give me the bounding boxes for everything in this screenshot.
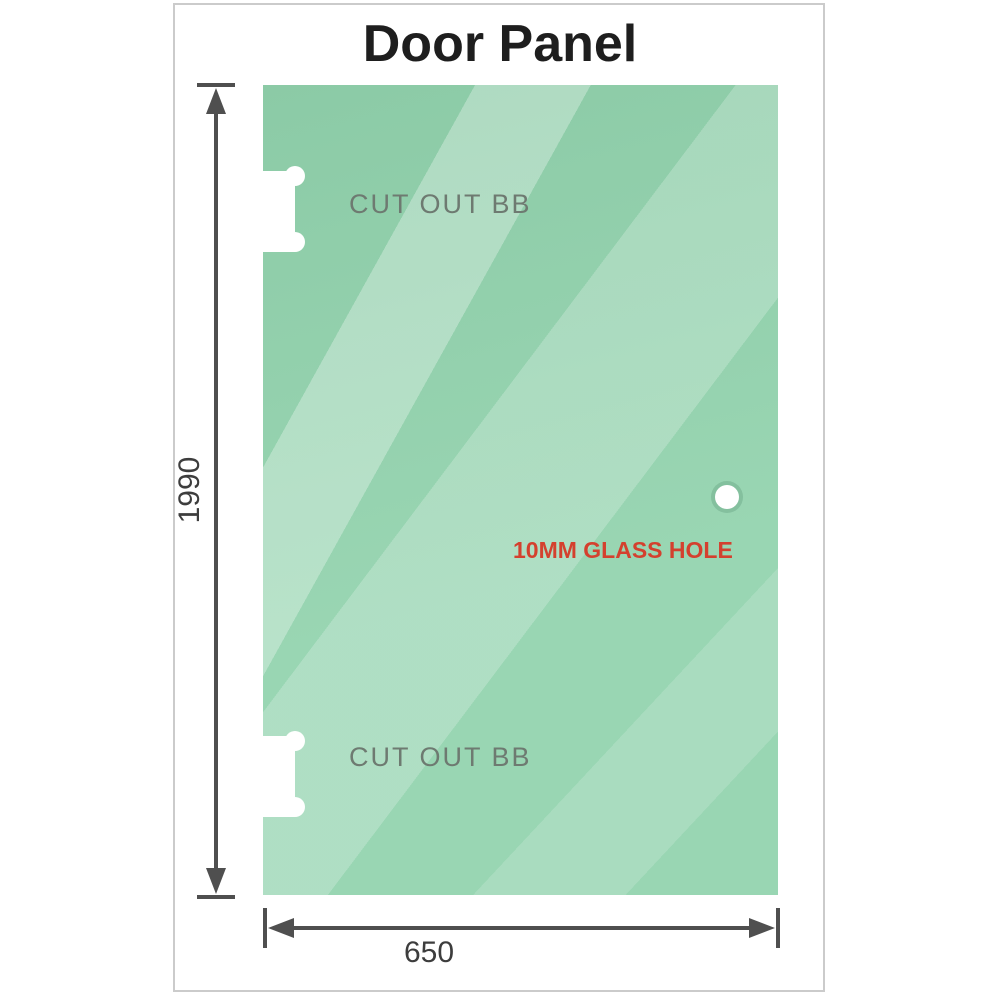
height-dimension-label: 1990 [174, 450, 206, 530]
cutout-label-bottom: CUT OUT BB [349, 742, 532, 773]
diagram-title: Door Panel [173, 14, 827, 74]
glass-hole-label: 10MM GLASS HOLE [513, 537, 733, 564]
cutout-label-top: CUT OUT BB [349, 189, 532, 220]
glass-hole [715, 485, 739, 509]
door-panel-diagram: Door Panel CUT OUT BB CUT OUT BB 10MM GL… [0, 0, 1000, 1000]
hinge-cutout-top-shape [262, 166, 308, 258]
glass-panel: CUT OUT BB CUT OUT BB 10MM GLASS HOLE [263, 85, 778, 895]
width-dimension-label: 650 [404, 936, 454, 970]
hinge-cutout-bottom-shape [262, 731, 308, 823]
